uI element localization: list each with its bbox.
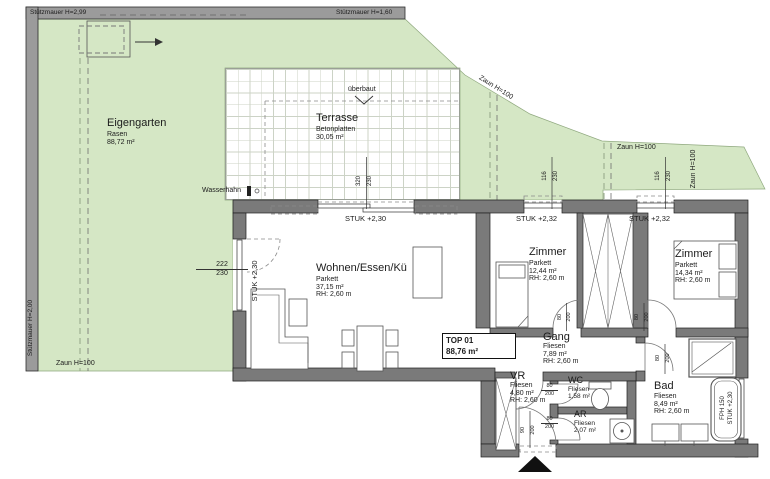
dim-window1-h: 230 xyxy=(553,136,563,216)
terrace-name: Terrasse xyxy=(316,112,358,124)
water-tap-icon xyxy=(247,186,251,196)
dim-door-z2-h: 200 xyxy=(644,277,654,357)
floor-plan: Stützmauer H=2,99 Stützmauer H=1,60 Stüt… xyxy=(0,0,770,479)
washbasin xyxy=(652,424,679,441)
room-label-vr: VR Fliesen 4,80 m² RH: 2,60 m xyxy=(510,370,545,405)
side-table xyxy=(289,299,307,326)
chair xyxy=(386,330,398,346)
pillow xyxy=(499,265,525,278)
fence-label-mid: Zaun H=100 xyxy=(617,144,656,152)
room-label-bad: Bad Fliesen 8,49 m² RH: 2,60 m xyxy=(654,380,689,416)
dim-terrace-door-w: 320 xyxy=(356,141,366,221)
room-label-zimmer2: Zimmer Parkett 14,34 m² RH: 2,60 m xyxy=(675,248,712,285)
toilet-bowl xyxy=(592,389,609,410)
bathtub-label: FPH 150 STUK +2,30 xyxy=(719,373,735,443)
chair xyxy=(342,352,354,368)
retaining-wall-label-top-left: Stützmauer H=2,99 xyxy=(30,9,86,16)
chair xyxy=(342,330,354,346)
kitchen-block xyxy=(413,247,442,298)
dim-window2-h: 230 xyxy=(666,136,676,216)
bathtub-model: FPH 150 xyxy=(719,373,727,443)
lintel-window2: STUK +2,32 xyxy=(629,215,670,223)
dim-window1-w: 116 xyxy=(542,136,552,216)
toilet-tank xyxy=(589,382,611,389)
overbuilt-label: überbaut xyxy=(348,86,376,94)
fence-label-right: Zaun H=100 xyxy=(690,129,700,209)
room-label-zimmer1: Zimmer Parkett 12,44 m² RH: 2,60 m xyxy=(529,246,566,283)
terrace-label: Terrasse Betonplatten 30,05 m² xyxy=(316,112,358,141)
unit-id: TOP 01 xyxy=(446,335,512,346)
retaining-wall-label-left: Stützmauer H=2,00 xyxy=(27,288,37,368)
fence-label-left: Zaun H=100 xyxy=(56,360,95,368)
garden-label: Eigengarten Rasen 88,72 m² xyxy=(107,117,166,146)
pillow xyxy=(719,244,736,269)
room-label-ar: AR Fliesen 2,07 m² xyxy=(574,410,596,434)
lintel-left-door: STUK +2,30 xyxy=(251,241,261,321)
dim-door-ar: 80 200 xyxy=(541,416,558,430)
room-label-wc: WC Fliesen 1,58 m² xyxy=(568,376,590,400)
retaining-wall-label-top-right: Stützmauer H=1,60 xyxy=(336,9,392,16)
water-tap-label: Wasserhahn xyxy=(202,187,241,195)
pillow xyxy=(719,272,736,297)
dim-left-door-h: 230 xyxy=(196,270,248,277)
dim-terrace-door-h: 230 xyxy=(367,141,377,221)
dim-window2-w: 116 xyxy=(655,136,665,216)
dining-table xyxy=(357,326,383,371)
garden-area: 88,72 m² xyxy=(107,139,166,147)
garden-name: Eigengarten xyxy=(107,117,166,129)
room-label-gang: Gang Fliesen 7,89 m² RH: 2,60 m xyxy=(543,331,578,366)
bathtub-lintel: STUK +2,30 xyxy=(727,373,735,443)
unit-id-box: TOP 01 88,76 m² xyxy=(442,333,516,359)
washbasin xyxy=(681,424,708,441)
terrace-surface: Betonplatten xyxy=(316,126,358,134)
overbuilt-marker-icon xyxy=(355,96,373,104)
chair xyxy=(386,352,398,368)
room-label-wohnen: Wohnen/Essen/Kü Parkett 37,15 m² RH: 2,6… xyxy=(316,262,407,299)
garden-surface: Rasen xyxy=(107,131,166,139)
dim-left-door: 222 230 xyxy=(196,261,248,277)
unit-area: 88,76 m² xyxy=(446,346,512,357)
terrace-area: 30,05 m² xyxy=(316,134,358,142)
dim-left-door-w: 222 xyxy=(196,261,248,270)
dim-door-z2-w: 80 xyxy=(634,277,644,357)
lintel-window1: STUK +2,32 xyxy=(516,215,557,223)
